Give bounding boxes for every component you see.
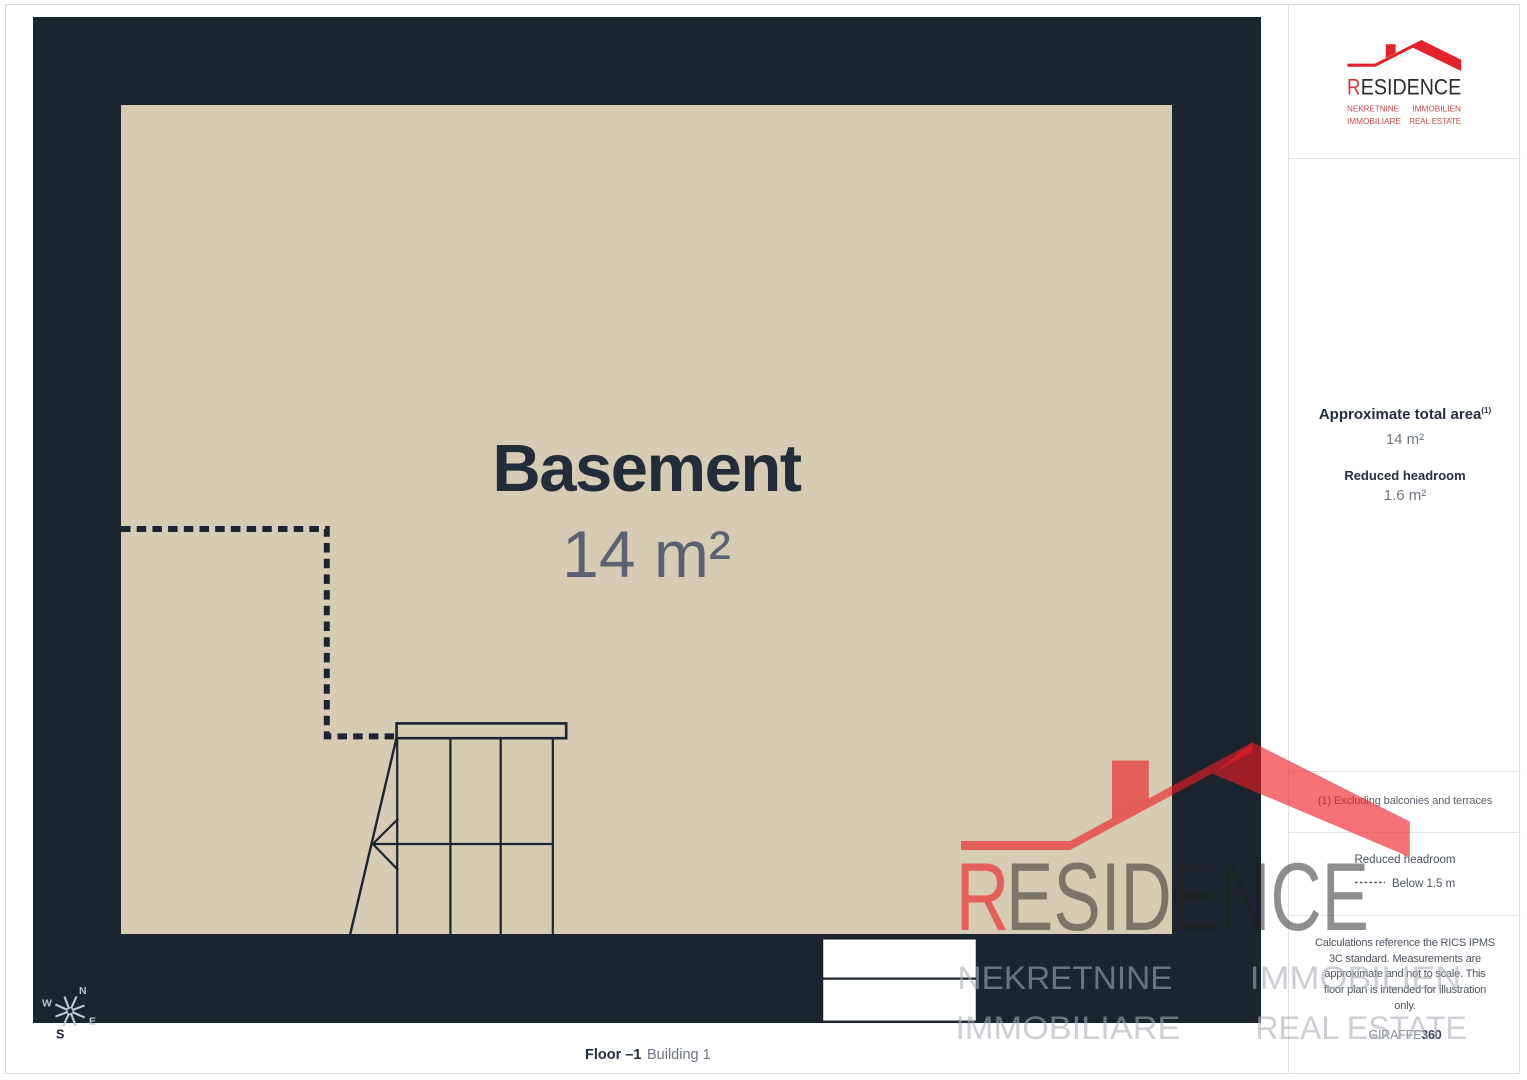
svg-text:E: E bbox=[89, 1016, 96, 1028]
svg-text:S: S bbox=[56, 1028, 64, 1042]
svg-text:ESIDENCE: ESIDENCE bbox=[1361, 75, 1461, 100]
svg-text:N: N bbox=[79, 985, 87, 997]
svg-text:IMMOBILIARE: IMMOBILIARE bbox=[1347, 116, 1401, 126]
svg-text:W: W bbox=[42, 998, 52, 1010]
svg-text:REAL ESTATE: REAL ESTATE bbox=[1409, 116, 1461, 126]
svg-text:IMMOBILIEN: IMMOBILIEN bbox=[1412, 104, 1461, 114]
svg-text:R: R bbox=[1347, 75, 1360, 100]
svg-text:NEKRETNINE: NEKRETNINE bbox=[1347, 104, 1399, 114]
